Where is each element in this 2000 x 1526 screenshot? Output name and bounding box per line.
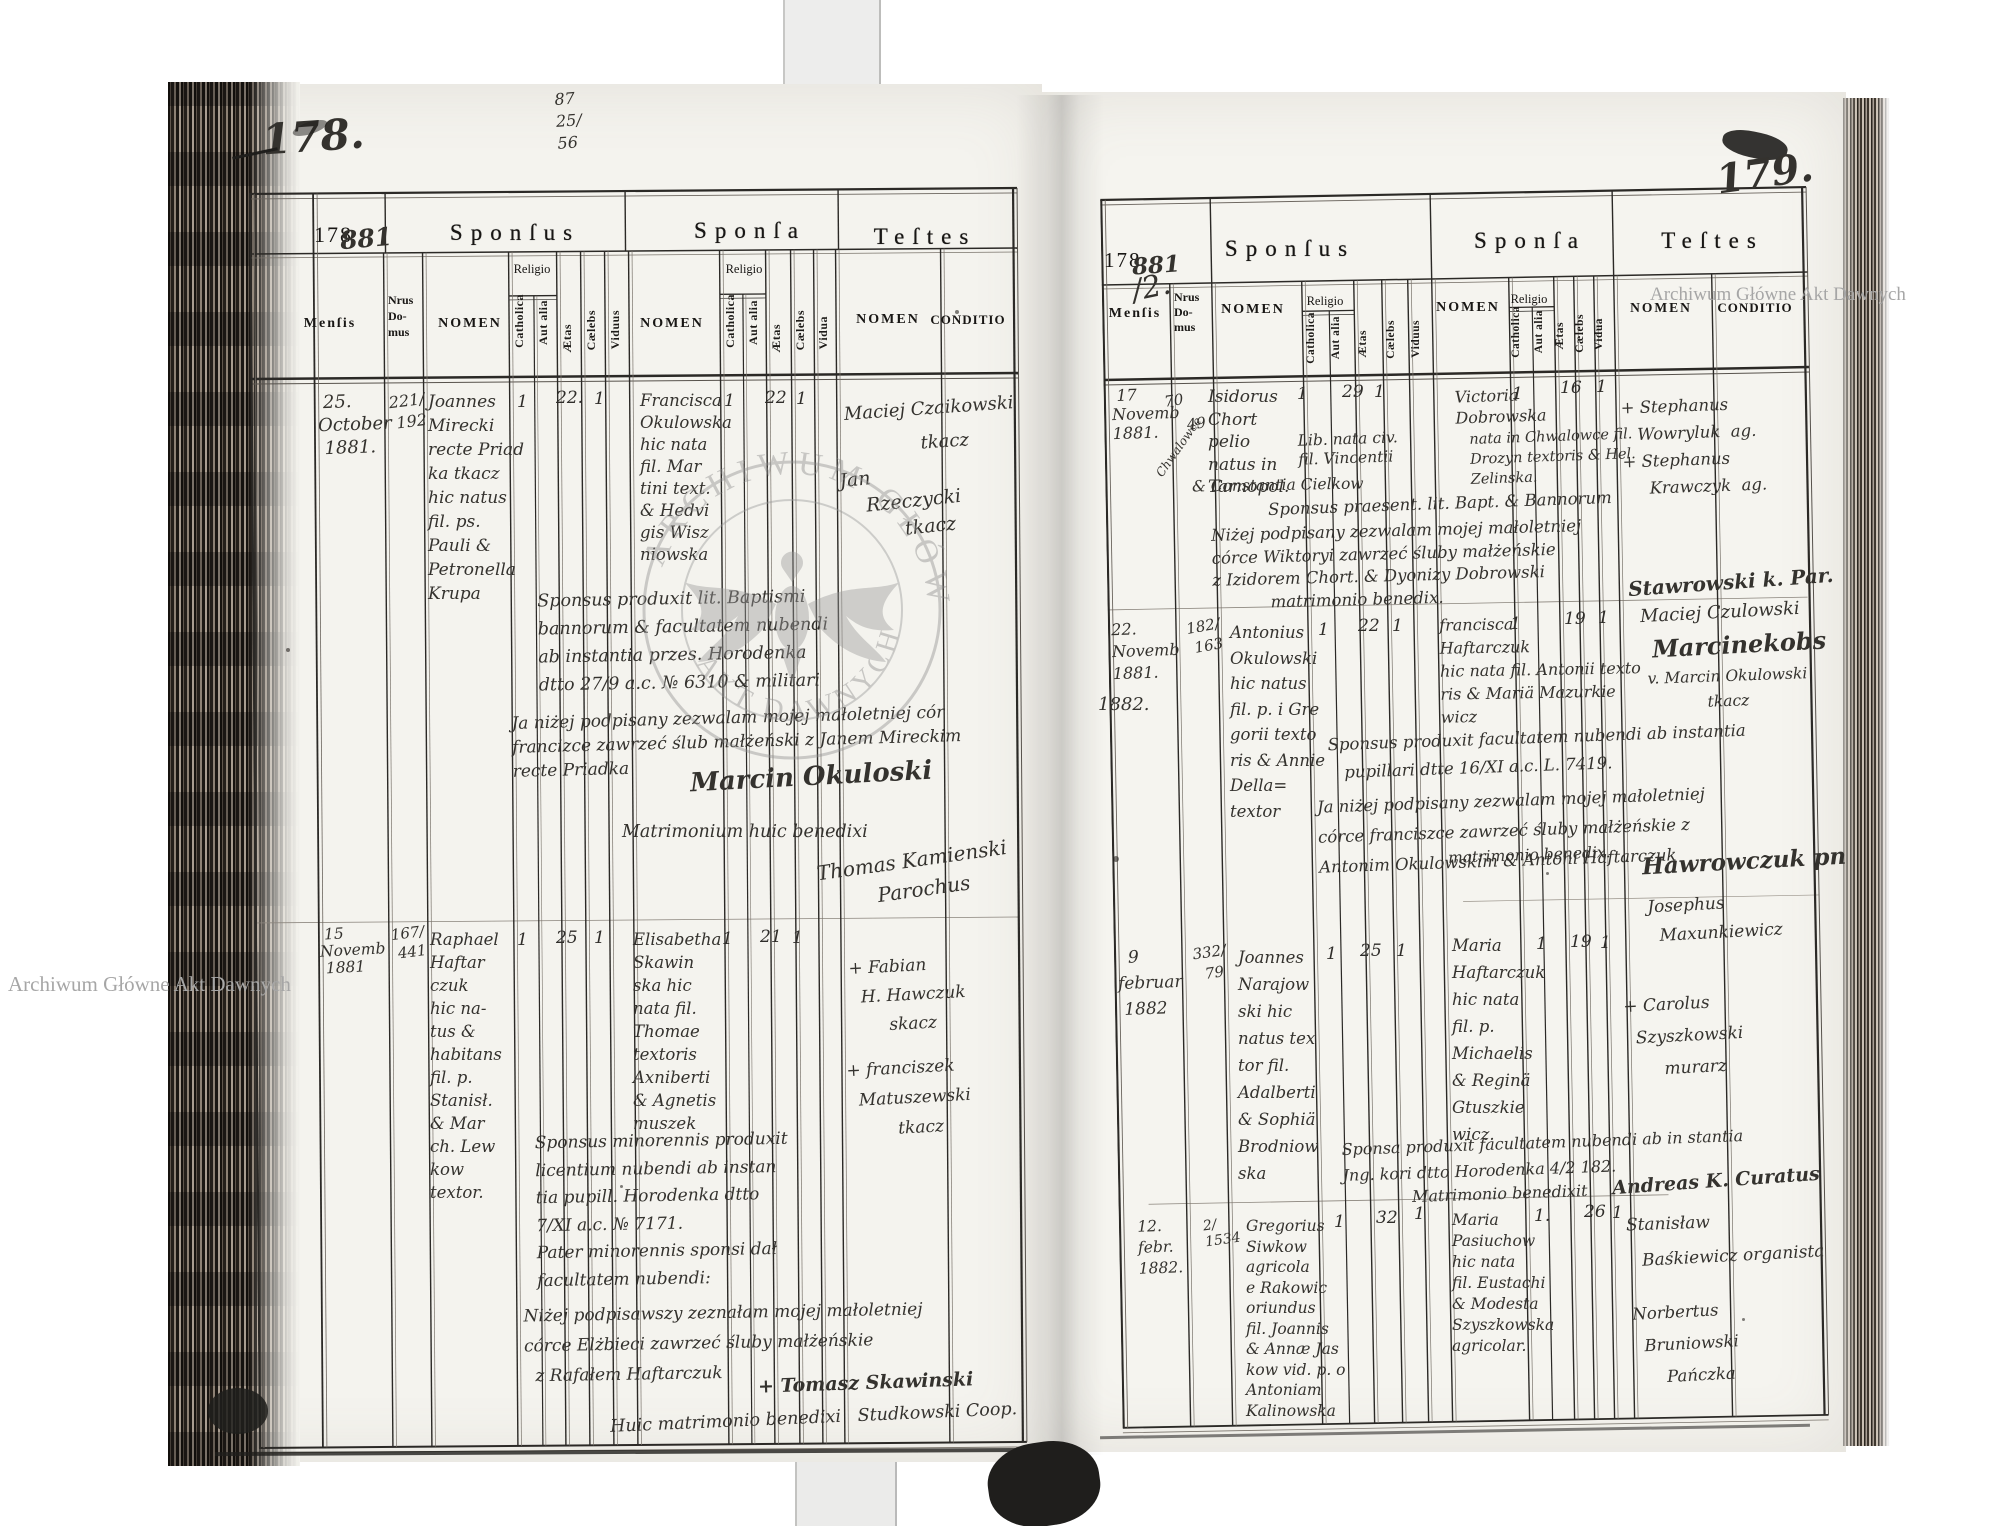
column-header-nrus-domus: Nrus Do- mus — [1174, 290, 1199, 335]
groom-age: 22 — [1358, 616, 1380, 636]
groom-religion-mark: 1 — [1297, 384, 1308, 404]
bride-celebs-mark: 1 — [1600, 933, 1611, 953]
bride-religion-mark: 1 — [1510, 614, 1521, 634]
groom-age: 32 — [1376, 1208, 1398, 1228]
column-header-aetas-bride: Ætas — [1554, 322, 1566, 350]
bride-religion-mark: 1 — [1536, 934, 1547, 954]
column-header-nomen-testes: NOMEN — [848, 312, 928, 328]
groom-religion-mark: 1 — [517, 392, 528, 412]
ink-speck — [1113, 856, 1119, 862]
groom-celebs-mark: 1 — [1374, 382, 1385, 402]
ink-speck — [620, 1185, 623, 1188]
ink-blot — [208, 1388, 268, 1434]
consent-note: Niżej podpisany zezwalam mojej małoletni… — [1211, 515, 1583, 615]
group-header-testes: Teſtes — [1630, 228, 1795, 254]
handwritten-year: 881 — [339, 222, 394, 255]
witness-names: Jan Rzeczycki tkacz — [838, 456, 965, 549]
witness-names: + franciszek Matuszewski tkacz — [846, 1050, 973, 1146]
groom-widower-mark: 1 — [1414, 1204, 1425, 1224]
column-header-nomen-groom: NOMEN — [1213, 302, 1293, 318]
column-header-religio-groom: Religio — [506, 262, 558, 277]
column-header-catholica-bride: Catholica — [1510, 306, 1522, 358]
column-header-conditio: CONDITIO — [1712, 300, 1798, 316]
group-header-sponsus: Sponſus — [430, 220, 600, 246]
bride-age: 19 — [1570, 932, 1592, 952]
house-number: 332/ 79 — [1191, 940, 1230, 986]
entry-date: 25. October 1881. — [317, 389, 393, 461]
column-header-mensis: Menſis — [300, 316, 360, 332]
column-header-viduus-groom: Viduus — [1410, 320, 1422, 358]
ink-speck — [1546, 872, 1549, 875]
bride-religion-mark: 1 — [722, 929, 733, 949]
groom-age: 29 — [1342, 382, 1364, 402]
witness-names: + Stephanus Wowryluk ag. + Stephanus Kra… — [1620, 390, 1767, 503]
groom-name: Joannes Narajow ski hic natus tex tor fi… — [1238, 944, 1318, 1187]
column-header-nomen-bride: NOMEN — [632, 316, 712, 332]
groom-name-continued: Lib. nata civ. fil. Vincentii — [1297, 428, 1398, 469]
groom-age: 25 — [556, 928, 578, 948]
bride-age: 26 — [1584, 1202, 1606, 1222]
bride-age: 16 — [1560, 378, 1582, 398]
column-header-nomen-groom: NOMEN — [430, 316, 510, 332]
witness-names: + Fabian H. Hawczuk skacz — [848, 949, 968, 1042]
bride-age: 21 — [760, 927, 782, 947]
groom-celebs-mark: 1 — [594, 389, 605, 409]
marriage-note: Sponsus produxit lit. Baptismi bannorum … — [537, 582, 829, 699]
column-header-aetas-bride: Ætas — [769, 324, 784, 353]
column-header-viduus-groom: Viduus — [608, 310, 623, 349]
benediction-note: Matrimonium huic benedixi — [622, 822, 868, 842]
column-header-caelebs-bride: Cælebs — [1574, 314, 1586, 353]
house-number: 221/ 192 — [388, 388, 429, 434]
groom-religion-mark: 1 — [1326, 944, 1337, 964]
witness-names: v. Marcin Okulowski tkacz — [1647, 661, 1808, 717]
groom-name: Gregorius Siwkow agricola e Rakowic oriu… — [1246, 1216, 1346, 1421]
groom-name: Antonius Okulowski hic natus fil. p. i G… — [1230, 620, 1325, 824]
column-header-aut-alia-groom: Aut alia — [1330, 316, 1342, 359]
witness-names: Josephus Maxunkiewicz — [1647, 887, 1784, 952]
group-header-sponsus: Sponſus — [1205, 236, 1375, 262]
groom-celebs-mark: 1 — [594, 928, 605, 948]
scanned-register-spread: 178. 87 25/ 56 178 881 Sponſus Sponſa Te… — [0, 0, 2000, 1526]
groom-age: 22. — [556, 388, 583, 408]
marriage-note: Sponsus minorennis produxit licentium nu… — [535, 1126, 791, 1295]
column-header-aetas-groom: Ætas — [1357, 330, 1369, 358]
bride-age: 22 — [765, 388, 787, 408]
bride-religion-mark: 1 — [1512, 384, 1523, 404]
bride-name: Victoria Dobrowska — [1454, 383, 1547, 428]
column-header-caelebs-groom: Cælebs — [1385, 320, 1397, 359]
groom-name-continued: & Constantia Cielkow — [1192, 475, 1364, 496]
bride-name: Francisca Okulowska hic nata fil. Mar ti… — [640, 390, 732, 566]
bride-celebs-mark: 1 — [1612, 1203, 1623, 1223]
entry-date: 12. febr. 1882. — [1137, 1215, 1184, 1280]
bride-religion-mark: 1. — [1534, 1206, 1550, 1226]
witness-names: Maciej Czaikowski tkacz — [843, 386, 1017, 466]
groom-religion-mark: 1 — [1318, 620, 1329, 640]
column-header-aut-alia-bride: Aut alia — [746, 300, 761, 345]
groom-name: Joannes Mirecki recte Priad ka tkacz hic… — [428, 390, 524, 606]
house-number: 2/ 1534 — [1202, 1214, 1242, 1251]
folio-number-left: 178. — [260, 108, 365, 164]
groom-celebs-mark: 1 — [1396, 941, 1407, 961]
bride-celebs-mark: 1 — [792, 928, 803, 948]
groom-religion-mark: 1 — [1334, 1212, 1345, 1232]
group-header-sponsa: Sponſa — [1445, 228, 1615, 254]
column-header-catholica-groom: Catholica — [1305, 312, 1317, 364]
house-number: 182/ 163 — [1185, 613, 1225, 658]
witness-names: + Carolus Szyszkowski murarz — [1623, 985, 1746, 1087]
bride-age: 19 — [1564, 609, 1586, 629]
bride-celebs-mark: 1 — [1598, 608, 1609, 628]
column-header-aetas-groom: Ætas — [560, 324, 575, 353]
groom-celebs-mark: 1 — [1392, 616, 1403, 636]
entry-date: 9 februar 1882 — [1117, 943, 1184, 1023]
column-header-religio-bride: Religio — [1503, 292, 1555, 307]
ink-speck — [955, 310, 959, 314]
bride-name: Elisabetha Skawin ska hic nata fil. Thom… — [633, 928, 721, 1135]
column-header-caelebs-bride: Cælebs — [793, 310, 808, 350]
column-header-catholica-bride: Catholica — [723, 294, 738, 348]
column-header-vidua-bride: Vidua — [816, 316, 831, 349]
column-header-aut-alia-groom: Aut alia — [536, 300, 551, 345]
column-header-nrus-domus: Nrus Do- mus — [388, 292, 413, 340]
column-header-aut-alia-bride: Aut alia — [1533, 310, 1545, 353]
groom-name: Raphael Haftar czuk hic na- tus & habita… — [430, 928, 502, 1204]
bride-name: Maria Pasiuchow hic nata fil. Eustachi &… — [1452, 1210, 1554, 1357]
group-header-testes: Teſtes — [845, 224, 1005, 250]
column-header-religio-bride: Religio — [718, 262, 770, 277]
column-header-religio-groom: Religio — [1298, 294, 1352, 309]
folio-fraction: 87 25/ 56 — [554, 87, 584, 155]
witness-names: Stanisław — [1626, 1213, 1711, 1236]
year-divider: 1882. — [1098, 694, 1150, 715]
column-header-conditio: CONDITIO — [926, 312, 1010, 328]
groom-age: 25 — [1360, 941, 1382, 961]
column-header-caelebs-groom: Cælebs — [584, 310, 599, 350]
house-number: 167/ 441 — [390, 922, 428, 964]
ink-speck — [1742, 1318, 1745, 1321]
column-header-nomen-bride: NOMEN — [1428, 300, 1508, 316]
bride-religion-mark: 1 — [724, 391, 735, 411]
ink-speck — [286, 648, 290, 652]
bride-celebs-mark: 1 — [1596, 377, 1607, 397]
bride-name: Maria Haftarczuk hic nata fil. p. Michae… — [1452, 932, 1545, 1148]
group-header-sponsa: Sponſa — [665, 218, 835, 244]
groom-religion-mark: 1 — [517, 930, 528, 950]
bride-name: francisca Haftarczuk hic nata fil. Anton… — [1439, 610, 1642, 728]
column-header-mensis: Menſis — [1106, 306, 1164, 322]
bride-name-continued: nata in Chwalowce fil. Drozyn textoris &… — [1469, 424, 1637, 490]
column-header-catholica-groom: Catholica — [512, 294, 527, 348]
entry-date: 15 Novemb 1881 — [319, 923, 387, 977]
witness-names: Norbertus Bruniowski Pańczka — [1632, 1293, 1742, 1394]
entry-date: 22. Novemb 1881. — [1111, 617, 1181, 685]
archive-watermark-bottom-left: Archiwum Główne Akt Dawnych — [8, 972, 291, 997]
column-header-vidua-bride: Vidua — [1593, 318, 1605, 350]
bride-celebs-mark: 1 — [796, 389, 807, 409]
column-header-nomen-testes: NOMEN — [1620, 300, 1702, 316]
